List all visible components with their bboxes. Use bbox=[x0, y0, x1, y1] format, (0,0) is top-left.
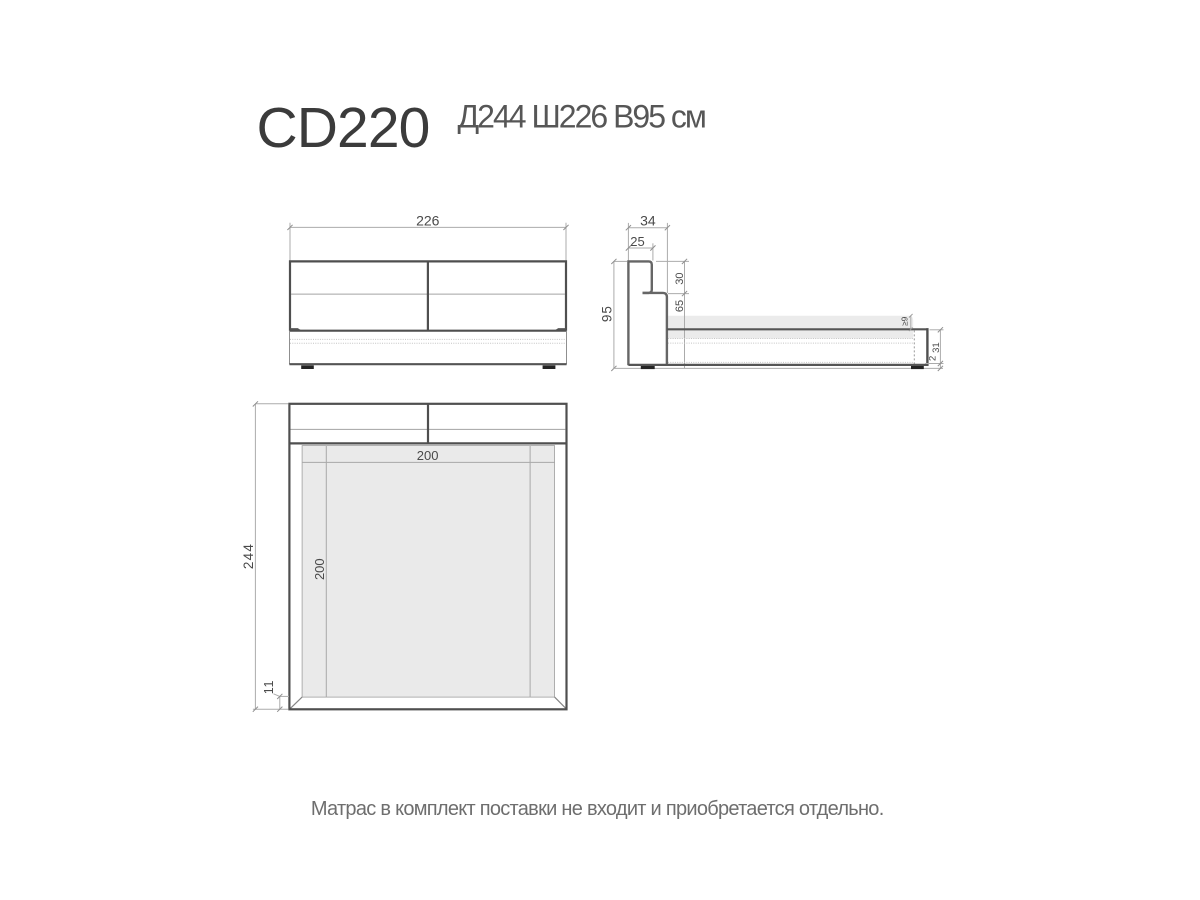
svg-text:Д244 Ш226 В95 см: Д244 Ш226 В95 см bbox=[458, 99, 705, 135]
svg-text:31: 31 bbox=[931, 342, 942, 353]
svg-text:Матрас в комплект поставки не: Матрас в комплект поставки не входит и п… bbox=[311, 798, 884, 820]
svg-text:200: 200 bbox=[417, 448, 439, 463]
svg-text:30: 30 bbox=[674, 272, 686, 284]
svg-text:≥9: ≥9 bbox=[900, 316, 910, 326]
svg-text:95: 95 bbox=[599, 305, 614, 322]
svg-text:65: 65 bbox=[674, 300, 686, 312]
svg-text:226: 226 bbox=[416, 212, 440, 228]
svg-text:244: 244 bbox=[241, 543, 256, 569]
svg-text:25: 25 bbox=[630, 234, 644, 249]
svg-text:11: 11 bbox=[262, 680, 276, 695]
svg-text:200: 200 bbox=[312, 558, 327, 580]
svg-text:34: 34 bbox=[640, 212, 656, 228]
svg-text:2: 2 bbox=[927, 356, 938, 361]
svg-text:CD220: CD220 bbox=[257, 96, 430, 160]
